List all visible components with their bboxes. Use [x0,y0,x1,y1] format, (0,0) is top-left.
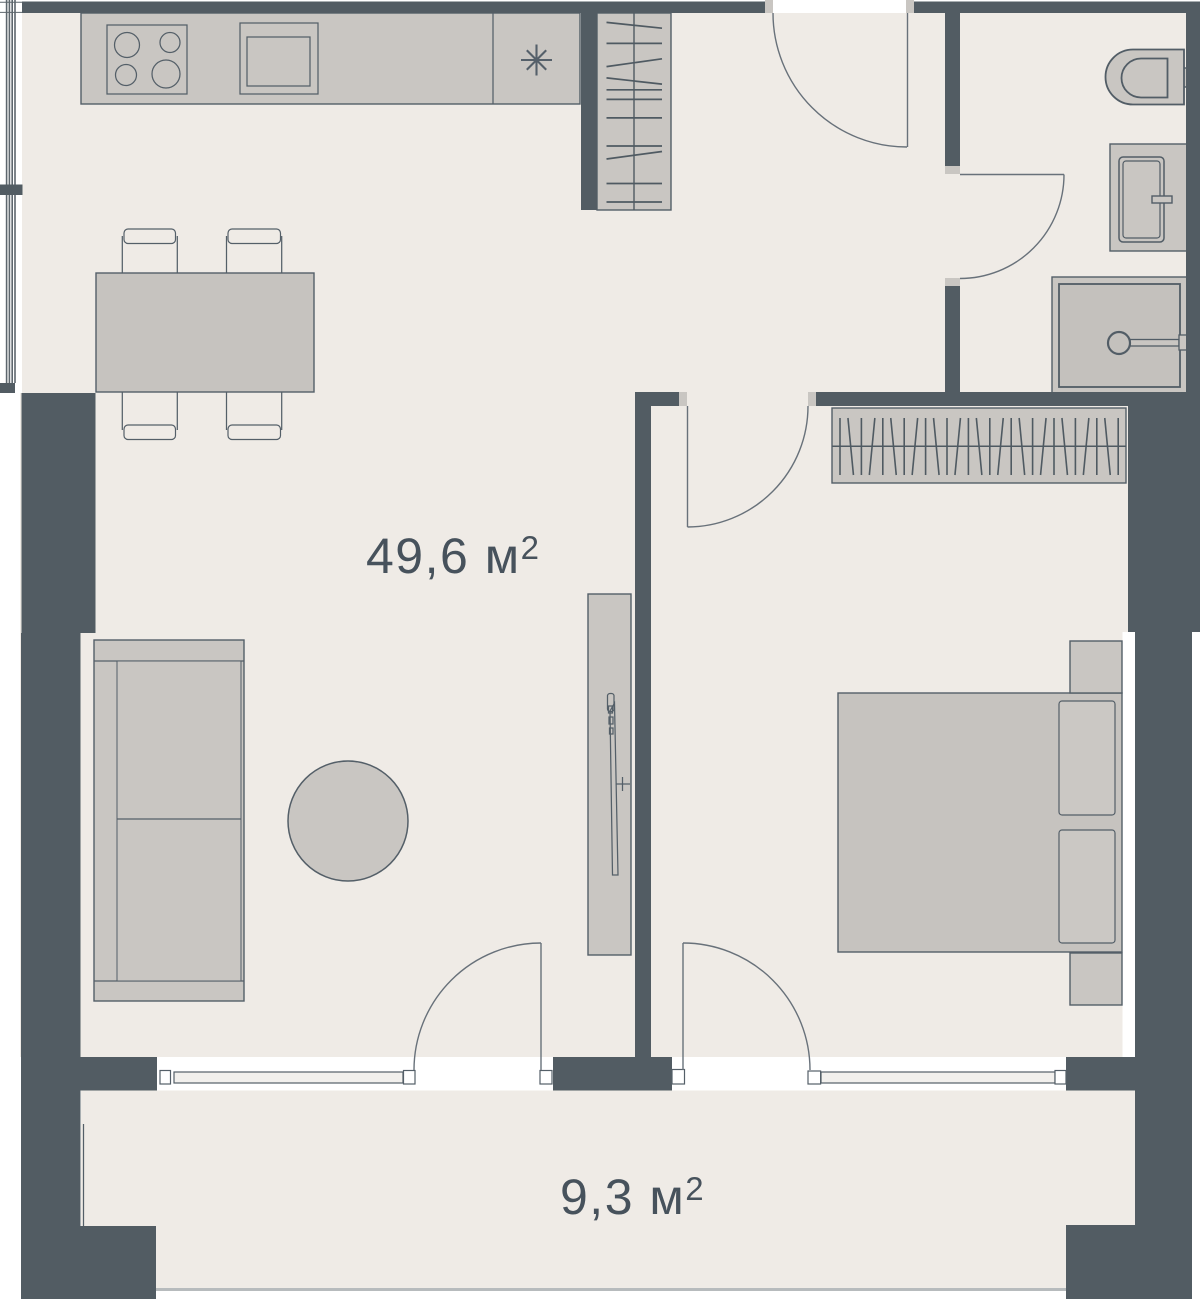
svg-text:49,6 м2: 49,6 м2 [366,528,540,584]
svg-text:9,3 м2: 9,3 м2 [560,1169,705,1225]
